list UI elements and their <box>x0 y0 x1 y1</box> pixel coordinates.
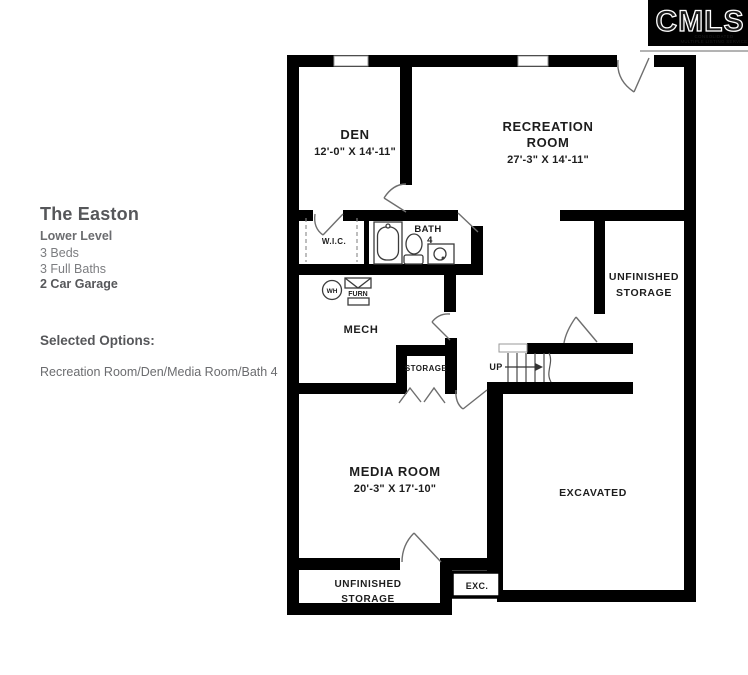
wall-media-top <box>287 383 396 394</box>
window-den <box>334 56 368 66</box>
unf-storage-right-label-1: UNFINISHED <box>609 271 679 283</box>
wall-den-divider <box>400 55 412 185</box>
storage-label: STORAGE <box>405 364 447 373</box>
den-door-icon <box>384 184 406 212</box>
mech-door-icon <box>432 314 450 340</box>
wic-label: W.I.C. <box>322 237 346 246</box>
wall-right <box>684 55 696 602</box>
wall-media-bottom-left <box>287 558 400 570</box>
unf-storage-right-label-2: STORAGE <box>616 287 672 299</box>
door-gap-wic <box>313 209 343 222</box>
excavated-label: EXCAVATED <box>559 487 627 499</box>
floor-plan-page: CMLS CONSOLIDATED MULTIPLE LISTING SERVI… <box>0 0 748 675</box>
toilet-icon <box>404 234 423 264</box>
wall-mech-right <box>444 264 456 312</box>
wall-below-stairs <box>487 382 633 394</box>
bathtub-icon <box>374 222 402 264</box>
recreation-dims: 27'-3" X 14'-11" <box>507 154 589 166</box>
unf-storage-door-icon <box>564 317 597 343</box>
door-gap-entry <box>617 54 654 68</box>
mech-label: MECH <box>344 324 379 336</box>
wall-left <box>287 55 299 615</box>
exc-label: EXC. <box>466 581 489 591</box>
wall-excavated-bottom <box>497 590 696 602</box>
media-dims: 20'-3" X 17'-10" <box>354 483 436 495</box>
up-label: UP <box>489 362 502 372</box>
wall-rec-storage-top <box>560 210 696 221</box>
media-label: MEDIA ROOM <box>349 464 440 479</box>
den-label: DEN <box>340 127 369 142</box>
media-storage-door-icon <box>402 533 441 562</box>
unf-storage-bottom-label-2: STORAGE <box>341 594 394 605</box>
sink-icon <box>428 244 454 264</box>
unf-storage-bottom-label-1: UNFINISHED <box>334 579 401 590</box>
up-arrow-head <box>535 363 543 371</box>
bath-label-2: 4 <box>427 235 433 246</box>
hall-media-door-icon <box>456 390 487 409</box>
wall-unf-storage-bottom <box>527 343 633 354</box>
window-recreation <box>518 56 548 66</box>
den-dims: 12'-0" X 14'-11" <box>314 146 396 158</box>
wall-unf-storage-left <box>594 221 605 314</box>
floor-plan-drawing: DEN 12'-0" X 14'-11" RECREATION ROOM 27'… <box>0 0 748 675</box>
furnace-label: FURN <box>348 291 367 298</box>
wall-wic-bath-top <box>287 210 458 221</box>
bath-door-icon <box>458 213 478 232</box>
stair-rail <box>499 344 527 352</box>
recreation-label-2: ROOM <box>527 135 570 150</box>
recreation-label-1: RECREATION <box>503 119 594 134</box>
stair-break-line <box>549 353 551 382</box>
water-heater-label: WH <box>327 288 338 295</box>
bath-label-1: BATH <box>414 224 441 235</box>
